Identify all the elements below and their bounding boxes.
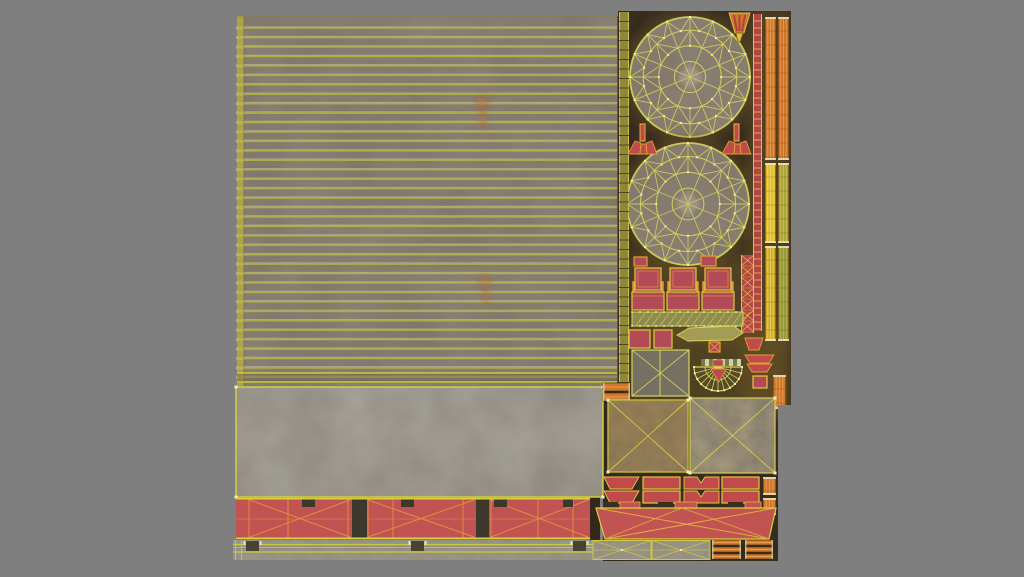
red-square-2	[654, 330, 672, 348]
shape	[643, 477, 680, 489]
vertex-dot	[730, 160, 732, 162]
edge-dot	[719, 311, 721, 313]
hatch-bar-uv	[631, 311, 750, 327]
edge-dot	[663, 325, 665, 327]
vertex-dot	[728, 102, 730, 104]
cap	[763, 498, 776, 500]
vertex-dot	[666, 131, 668, 133]
edge-dot	[679, 311, 681, 313]
band-tab	[620, 502, 640, 508]
vertex-dot	[728, 50, 730, 52]
fan-dot	[705, 387, 707, 389]
fan-dot	[738, 378, 740, 380]
red-square-1	[629, 330, 650, 348]
band-dark-notch	[603, 502, 618, 508]
vertex-dot	[650, 50, 652, 52]
vertex-dot	[689, 16, 691, 18]
vertex-dot	[663, 115, 665, 117]
edge-dot	[679, 325, 681, 327]
vertex-dot	[696, 250, 698, 252]
fan-dot	[700, 383, 702, 385]
vertex-dot	[647, 177, 649, 179]
cap	[763, 477, 776, 479]
corner-dot	[607, 399, 610, 402]
tan-x-square	[607, 399, 690, 474]
edge-dot	[735, 311, 737, 313]
vertex-dot	[678, 250, 680, 252]
plank-cap	[745, 540, 747, 559]
edge-dot	[655, 311, 657, 313]
plank-cap	[629, 383, 631, 401]
vertex-dot	[727, 177, 729, 179]
vertex-dot	[647, 34, 649, 36]
vertex-dot	[640, 194, 642, 196]
vertex-dot	[680, 30, 682, 32]
cap	[778, 17, 789, 19]
band-tab	[745, 502, 761, 508]
band-tick	[571, 541, 573, 545]
concrete-slab-uv	[235, 386, 605, 499]
corner-dot	[235, 386, 238, 389]
vertex-dot	[710, 147, 712, 149]
seat-uv	[632, 268, 664, 310]
vertex-dot	[665, 225, 667, 227]
edge-dot	[727, 311, 729, 313]
yellow-strip-1	[765, 163, 776, 243]
edge-dot	[647, 311, 649, 313]
vertex-dot	[743, 180, 745, 182]
vertex-dot	[643, 85, 645, 87]
cap	[765, 339, 776, 341]
vertex-dot	[661, 243, 663, 245]
vertex-dot	[727, 229, 729, 231]
vertex-dot	[687, 264, 689, 266]
corner-dot	[774, 472, 777, 475]
checker-cell	[733, 359, 737, 366]
vertex-dot	[658, 76, 660, 78]
edge-dot	[711, 311, 713, 313]
trap-rect-2	[722, 477, 759, 489]
cap	[763, 493, 776, 495]
orange-strip-1	[765, 17, 776, 160]
background-notch	[778, 405, 791, 561]
vertex-dot	[689, 45, 691, 47]
yellow-strip-2	[778, 163, 789, 243]
corner-dot	[607, 471, 610, 474]
cap	[765, 246, 776, 248]
vertex-dot	[666, 21, 668, 23]
vertex-dot	[650, 102, 652, 104]
band-gap	[352, 498, 367, 539]
vertex-dot	[712, 21, 714, 23]
vertex-dot	[664, 147, 666, 149]
vertex-dot	[719, 203, 721, 205]
vertex-dot	[644, 246, 646, 248]
vertex-dot	[634, 99, 636, 101]
edge-dot	[639, 325, 641, 327]
corner-dot	[689, 397, 692, 400]
seat-bottom	[667, 292, 699, 310]
band-gap	[476, 498, 489, 539]
edge-dot	[639, 311, 641, 313]
wall-left-strip	[237, 16, 244, 386]
vertex-dot	[711, 54, 713, 56]
seat-bottom	[702, 292, 734, 310]
band-tick	[244, 541, 246, 545]
band-tick	[425, 541, 427, 545]
cap	[765, 163, 776, 165]
plank-cap	[740, 540, 742, 559]
vertex-dot	[713, 243, 715, 245]
seat-uv	[667, 268, 699, 310]
vertex-dot	[687, 142, 689, 144]
shape	[753, 376, 767, 388]
vertex-dot	[689, 107, 691, 109]
plank-group-1	[712, 540, 741, 559]
vertex-dot	[744, 99, 746, 101]
plank-group-2	[745, 540, 773, 559]
cap	[778, 339, 789, 341]
lamp-left-stick	[640, 124, 645, 141]
cap	[778, 246, 789, 248]
fan-dot	[693, 366, 695, 368]
cap	[778, 241, 789, 243]
shape	[629, 330, 650, 348]
gray-x-square	[689, 397, 777, 475]
vertex-dot	[667, 54, 669, 56]
vertex-dot	[644, 160, 646, 162]
xbox-dot	[680, 549, 682, 551]
trap-rect-3	[643, 491, 680, 503]
edge-dot	[687, 311, 689, 313]
edge-dot	[703, 325, 705, 327]
red-tab-2	[701, 256, 716, 266]
wheel-uv-bottom	[621, 137, 755, 271]
seat-bottom	[632, 292, 664, 310]
vertex-dot	[735, 67, 737, 69]
edge-dot	[647, 325, 649, 327]
fan-dot	[696, 378, 698, 380]
edge-dot	[695, 311, 697, 313]
cap	[778, 158, 789, 160]
checker-cell	[701, 359, 705, 366]
vertex-dot	[629, 76, 631, 78]
vertex-dot	[715, 115, 717, 117]
edge-dot	[695, 325, 697, 327]
vertex-dot	[647, 118, 649, 120]
vertex-dot	[730, 246, 732, 248]
screenshot-canvas: UV texture atlas sheet for a 3D model: s…	[0, 0, 1024, 577]
vertex-dot	[734, 194, 736, 196]
vertex-dot	[698, 122, 700, 124]
cap	[773, 375, 786, 377]
vertex-dot	[731, 34, 733, 36]
corner-dot	[602, 496, 605, 499]
edge-dot	[631, 325, 633, 327]
concrete-grain	[236, 387, 603, 497]
uv-texture-atlas-image	[233, 11, 791, 561]
vertex-dot	[698, 30, 700, 32]
vertex-dot	[667, 98, 669, 100]
band-tick	[260, 541, 262, 545]
plank-cap	[772, 540, 774, 559]
edge-dot	[631, 311, 633, 313]
yellow-strip-3	[765, 246, 776, 341]
vertex-dot	[709, 225, 711, 227]
lamp-right-stick	[734, 124, 739, 141]
fan-dot	[729, 387, 731, 389]
vertex-dot	[735, 85, 737, 87]
vertex-dot	[709, 181, 711, 183]
band-tick	[587, 541, 589, 545]
orange-bit-1	[763, 477, 776, 495]
red-square-3	[753, 376, 767, 388]
red-trap-c	[747, 364, 772, 372]
red-chip	[709, 342, 720, 352]
cap	[765, 17, 776, 19]
vertex-dot	[687, 235, 689, 237]
red-trap-b	[745, 355, 774, 363]
orange-strip-2	[778, 17, 789, 160]
shape	[701, 256, 716, 266]
band-dark-notch	[658, 502, 673, 508]
vertex-dot	[665, 181, 667, 183]
yellow-strip-4	[778, 246, 789, 341]
fan-dot	[741, 366, 743, 368]
vertex-dot	[680, 122, 682, 124]
seat-uv	[702, 268, 734, 310]
red-trim-band-left	[236, 498, 590, 539]
fan-dot	[734, 383, 736, 385]
vertex-dot	[713, 163, 715, 165]
edge-dot	[655, 325, 657, 327]
trap-rect-4	[722, 491, 759, 503]
shape	[634, 257, 647, 266]
band-square	[573, 541, 586, 551]
vertex-dot	[748, 203, 750, 205]
vertex-dot	[634, 53, 636, 55]
corner-dot	[689, 472, 692, 475]
vertex-dot	[663, 37, 665, 39]
checker-cell	[709, 359, 713, 366]
vertex-dot	[712, 131, 714, 133]
checker-cell	[729, 359, 733, 366]
vertex-dot	[655, 203, 657, 205]
band-tab	[675, 502, 697, 508]
striped-wall-uv	[237, 16, 619, 386]
cap	[765, 158, 776, 160]
vertex-dot	[711, 98, 713, 100]
vertex-dot	[647, 229, 649, 231]
bottom-band-uv	[233, 540, 710, 560]
plank-cap	[712, 540, 714, 559]
red-tab-1	[634, 257, 647, 266]
cap	[765, 241, 776, 243]
vertex-dot	[720, 76, 722, 78]
shape	[722, 477, 759, 489]
fan-dot	[740, 372, 742, 374]
band-square	[411, 541, 424, 551]
vertex-dot	[661, 163, 663, 165]
band-dark-notch	[728, 502, 743, 508]
plank-cap	[603, 383, 605, 401]
fan-red-tab	[713, 360, 723, 366]
vertex-dot	[631, 226, 633, 228]
red-ladder-strip	[753, 14, 762, 331]
vertex-dot	[749, 76, 751, 78]
band-square	[246, 541, 259, 551]
fan-dot	[717, 390, 719, 392]
red-trim-band-right	[596, 502, 776, 539]
checker-cell	[737, 359, 741, 366]
edge-dot	[703, 311, 705, 313]
vertex-dot	[631, 180, 633, 182]
vertex-dot	[643, 67, 645, 69]
fan-dot	[723, 389, 725, 391]
vertex-dot	[734, 212, 736, 214]
edge-dot	[663, 311, 665, 313]
olive-ladder-strip	[619, 12, 629, 391]
vertex-dot	[678, 156, 680, 158]
edge-dot	[671, 325, 673, 327]
vertex-dot	[687, 171, 689, 173]
edge-dot	[687, 325, 689, 327]
vertex-dot	[715, 37, 717, 39]
checker-cell	[725, 359, 729, 366]
vertex-dot	[640, 212, 642, 214]
strip-base	[753, 14, 762, 331]
fan-dot	[694, 372, 696, 374]
corner-dot	[774, 397, 777, 400]
vertex-dot	[664, 259, 666, 261]
vertex-dot	[731, 118, 733, 120]
shape	[643, 491, 680, 503]
vertex-dot	[744, 53, 746, 55]
band-tick	[409, 541, 411, 545]
trap-rect-1	[643, 477, 680, 489]
cap	[778, 163, 789, 165]
shape	[654, 330, 672, 348]
edge-dot	[671, 311, 673, 313]
shape	[722, 491, 759, 503]
vertex-dot	[743, 226, 745, 228]
xbox-dot	[621, 549, 623, 551]
checker-cell	[705, 359, 709, 366]
vertex-dot	[696, 156, 698, 158]
fan-dot	[711, 389, 713, 391]
